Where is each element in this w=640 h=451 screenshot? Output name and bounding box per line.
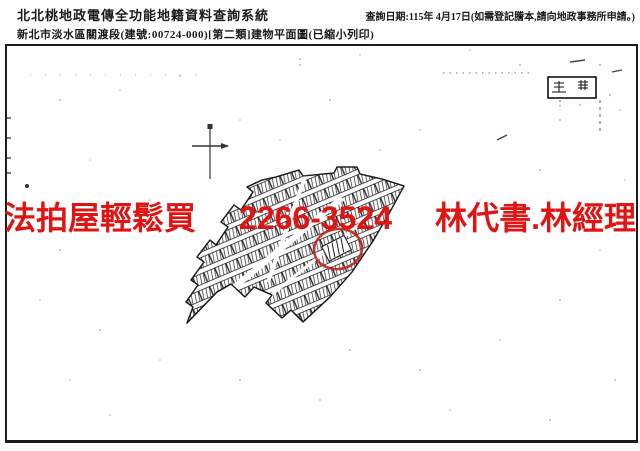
watermark-banner: 法拍屋輕鬆買 2266-3524 林代書.林經理 [0,196,640,240]
legend-inset-box [548,77,600,132]
scan-dotted-lines [30,58,533,75]
north-cross-icon [192,124,229,179]
parcel-block-polygon [186,167,404,323]
watermark-contact: 林代書.林經理 [435,196,636,240]
scanned-document-page: 北北桃地政電傳全功能地籍資料查詢系統 新北市淡水區關渡段(建號:00724-00… [0,0,640,451]
scan-marks [7,60,622,188]
watermark-phone: 2266-3524 [239,196,392,240]
watermark-slogan: 法拍屋輕鬆買 [4,196,196,240]
